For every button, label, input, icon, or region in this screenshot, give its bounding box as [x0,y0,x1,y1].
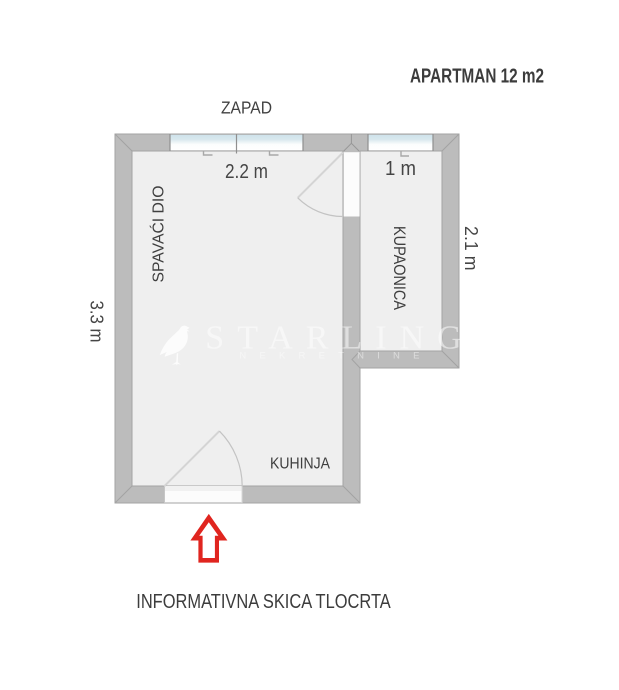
svg-text:2.1 m: 2.1 m [461,226,482,270]
svg-text:INFORMATIVNA SKICA TLOCRTA: INFORMATIVNA SKICA TLOCRTA [136,590,391,613]
svg-text:3.3 m: 3.3 m [87,301,108,343]
svg-text:ZAPAD: ZAPAD [221,98,272,118]
svg-text:SPAVAĆI DIO: SPAVAĆI DIO [149,186,168,283]
svg-text:NEKRETNINE: NEKRETNINE [239,351,432,362]
svg-text:2.2 m: 2.2 m [225,160,268,183]
svg-text:APARTMAN 12 m2: APARTMAN 12 m2 [410,66,544,88]
svg-text:1 m: 1 m [385,158,416,180]
svg-text:KUHINJA: KUHINJA [270,455,330,472]
svg-text:KUPAONICA: KUPAONICA [390,226,408,310]
